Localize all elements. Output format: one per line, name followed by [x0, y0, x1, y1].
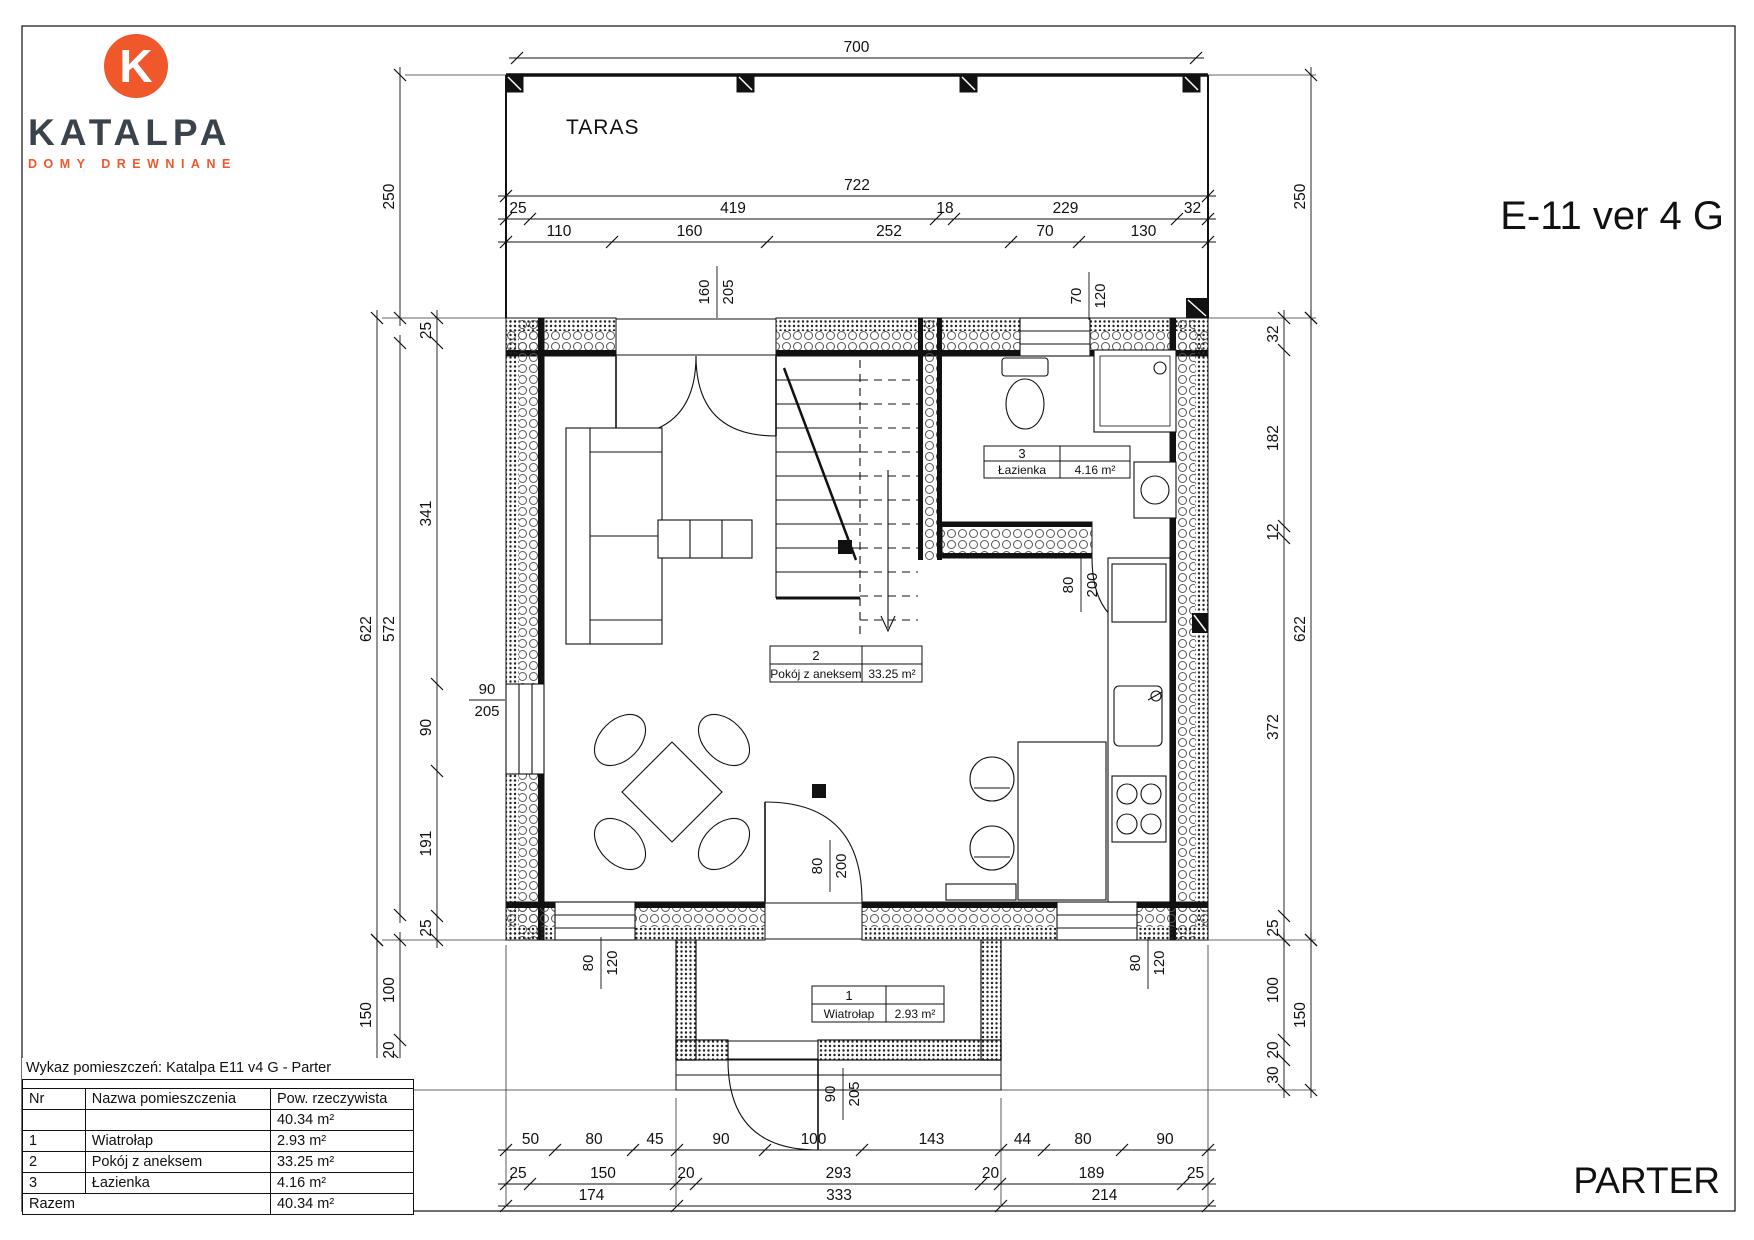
kitchen: [946, 558, 1170, 902]
terrace: [506, 75, 1208, 318]
table-row-subtotal: 40.34 m²: [23, 1110, 414, 1131]
dim-label: 90: [712, 1131, 730, 1148]
floor-title: PARTER: [1573, 1160, 1720, 1202]
kitchen-sink: [1114, 686, 1162, 746]
room-nr: 1: [23, 1131, 86, 1152]
dim-chain: 174333214: [498, 1187, 1216, 1212]
room-area: 33.25 m²: [270, 1152, 413, 1173]
bathroom-fixtures: [1002, 350, 1176, 518]
dim-label: 622: [1292, 616, 1309, 642]
dim-label: 25: [1265, 919, 1282, 936]
dim-label: 341: [418, 501, 435, 527]
dim-chain: 254191822932: [498, 200, 1216, 225]
left-window: [506, 684, 544, 774]
front-door-label: 90 205: [822, 1068, 863, 1120]
dim-chain: 700: [509, 39, 1204, 64]
dim-label: 100: [1265, 977, 1282, 1003]
dim-label: 130: [1131, 223, 1157, 240]
dim-chain: 1002030: [1265, 932, 1290, 1098]
room-schedule-caption: Wykaz pomieszczeń: Katalpa E11 v4 G - Pa…: [22, 1058, 414, 1079]
floor-plan-svg: TARAS: [0, 0, 1754, 1240]
table-row: [23, 1080, 414, 1089]
logo-tagline: DOMY DREWNIANE: [28, 157, 260, 171]
table-row: 3 Łazienka 4.16 m²: [23, 1173, 414, 1194]
col-header-area: Pow. rzeczywista: [270, 1089, 413, 1110]
dim-chain: 572: [381, 335, 406, 923]
window-br-label: 80 120: [1127, 937, 1168, 989]
bar-stools: [970, 757, 1014, 870]
dim-label: 160: [677, 223, 703, 240]
dim-label: 150: [358, 1002, 375, 1028]
bath-window: [1020, 318, 1090, 356]
svg-text:200: 200: [833, 853, 850, 878]
dim-label: 25: [418, 919, 435, 936]
stairs: [776, 356, 918, 640]
dim-label: 150: [1292, 1002, 1309, 1028]
svg-text:80: 80: [809, 858, 826, 875]
room-schedule: Wykaz pomieszczeń: Katalpa E11 v4 G - Pa…: [22, 1058, 414, 1215]
dim-chain: 150: [1292, 932, 1317, 1098]
dim-label: 722: [844, 177, 870, 194]
svg-text:205: 205: [846, 1081, 863, 1106]
toilet: [1002, 358, 1048, 429]
room-tag-2: 2 Pokój z aneksem 33.25 m²: [770, 646, 922, 682]
stair-direction-arrow: [881, 470, 895, 631]
dim-label: 182: [1265, 425, 1282, 451]
dim-label: 143: [919, 1131, 945, 1148]
dim-label: 100: [801, 1131, 827, 1148]
dim-label: 50: [522, 1131, 540, 1148]
bath-door-label: 80 200: [1060, 558, 1101, 612]
dim-label: 32: [1184, 200, 1201, 217]
svg-text:80: 80: [1127, 955, 1144, 972]
double-entry-door-top: [616, 319, 776, 436]
sofa: [566, 428, 662, 644]
svg-text:2: 2: [812, 648, 819, 663]
svg-text:120: 120: [1092, 283, 1109, 308]
dim-label: 20: [1265, 1041, 1282, 1059]
dim-label: 372: [1265, 714, 1282, 740]
svg-text:160: 160: [696, 279, 713, 304]
dim-label: 32: [1265, 325, 1282, 342]
dim-label: 700: [844, 39, 870, 56]
window-bl-label: 80 120: [580, 937, 621, 989]
svg-text:205: 205: [474, 703, 499, 720]
room-nr: 3: [23, 1173, 86, 1194]
dim-chain: 321821237225: [1265, 310, 1290, 948]
room-tag-1: 1 Wiatrołap 2.93 m²: [812, 986, 944, 1022]
svg-text:70: 70: [1068, 288, 1085, 305]
svg-text:2.93 m²: 2.93 m²: [895, 1007, 936, 1021]
svg-text:3: 3: [1018, 446, 1025, 461]
dim-label: 110: [547, 223, 572, 240]
table-row-total: Razem 40.34 m²: [23, 1194, 414, 1215]
dim-label: 18: [936, 200, 953, 217]
table-row: 2 Pokój z aneksem 33.25 m²: [23, 1152, 414, 1173]
col-header-name: Nazwa pomieszczenia: [85, 1089, 270, 1110]
cooktop: [1112, 776, 1166, 842]
logo-letter: K: [119, 39, 152, 93]
svg-text:90: 90: [479, 681, 496, 698]
bottom-right-window: [1057, 902, 1137, 940]
dim-label: 293: [826, 1165, 852, 1182]
room-area: 2.93 m²: [270, 1131, 413, 1152]
table-row: 1 Wiatrołap 2.93 m²: [23, 1131, 414, 1152]
shower: [1094, 350, 1176, 432]
svg-text:80: 80: [1060, 577, 1077, 594]
room-name: Łazienka: [85, 1173, 270, 1194]
dim-label: 44: [1014, 1131, 1032, 1148]
room-nr: 2: [23, 1152, 86, 1173]
dim-label: 80: [1074, 1131, 1092, 1148]
entry-top-label: 160 205: [696, 266, 737, 318]
sheet-frame: [22, 26, 1735, 1211]
dim-label: 25: [509, 1165, 526, 1182]
washbasin: [1134, 462, 1176, 518]
logo-name: KATALPA: [28, 114, 260, 151]
bath-window-label: 70 120: [1068, 272, 1109, 320]
svg-text:90: 90: [822, 1086, 839, 1103]
dim-label: 90: [418, 719, 435, 737]
dim-label: 20: [982, 1165, 1000, 1182]
dim-chain: 722: [498, 177, 1216, 202]
svg-text:80: 80: [580, 955, 597, 972]
dim-label: 80: [585, 1131, 603, 1148]
dim-chain: 11016025270130: [498, 223, 1216, 248]
dim-label: 189: [1079, 1165, 1105, 1182]
svg-text:205: 205: [720, 279, 737, 304]
svg-text:1: 1: [845, 988, 852, 1003]
sideboard: [658, 520, 752, 558]
hall-door-label: 80 200: [809, 840, 850, 892]
dim-label: 250: [1292, 183, 1309, 209]
dining-set: [585, 705, 760, 880]
dim-label: 572: [381, 616, 398, 642]
bench: [946, 884, 1016, 900]
svg-text:Łazienka: Łazienka: [998, 463, 1046, 477]
drawing-sheet: TARAS: [0, 0, 1754, 1240]
dim-chain: 50804590100143448090: [498, 1131, 1216, 1156]
table-header-row: Nr Nazwa pomieszczenia Pow. rzeczywista: [23, 1089, 414, 1110]
dim-label: 229: [1053, 200, 1079, 217]
svg-text:120: 120: [1151, 950, 1168, 975]
svg-text:Wiatrołap: Wiatrołap: [824, 1007, 875, 1021]
dim-label: 250: [381, 183, 398, 209]
model-title: E-11 ver 4 G: [1500, 194, 1724, 239]
dim-label: 45: [646, 1131, 663, 1148]
room-name: Pokój z aneksem: [85, 1152, 270, 1173]
dim-label: 20: [381, 1041, 398, 1059]
left-window-label: 90 205: [469, 681, 505, 720]
dim-chain: 622: [358, 310, 383, 948]
dim-label: 174: [579, 1187, 605, 1204]
room-name: Wiatrołap: [85, 1131, 270, 1152]
total-value: 40.34 m²: [270, 1194, 413, 1215]
svg-text:200: 200: [1084, 572, 1101, 597]
total-label: Razem: [23, 1194, 271, 1215]
col-header-nr: Nr: [23, 1089, 86, 1110]
entry-steps: [676, 1060, 1001, 1090]
dim-label: 100: [381, 977, 398, 1003]
living-furniture: [566, 428, 759, 879]
dim-label: 25: [1187, 1165, 1204, 1182]
svg-text:Pokój z aneksem: Pokój z aneksem: [770, 667, 861, 681]
dim-label: 622: [358, 616, 375, 642]
svg-text:120: 120: [604, 950, 621, 975]
svg-text:4.16 m²: 4.16 m²: [1075, 463, 1116, 477]
svg-text:33.25 m²: 33.25 m²: [868, 667, 915, 681]
logo: K KATALPA DOMY DREWNIANE: [28, 34, 260, 171]
subtotal-area: 40.34 m²: [270, 1110, 413, 1131]
dim-label: 333: [826, 1187, 852, 1204]
dim-label: 252: [876, 223, 902, 240]
dim-label: 25: [509, 200, 526, 217]
dim-label: 214: [1092, 1187, 1118, 1204]
room-tag-3: 3 Łazienka 4.16 m²: [984, 446, 1130, 478]
fridge: [1112, 564, 1166, 622]
dim-label: 20: [677, 1165, 695, 1182]
dim-label: 419: [720, 200, 746, 217]
dim-label: 70: [1036, 223, 1054, 240]
terrace-label: TARAS: [566, 116, 639, 139]
dim-chain: 250: [1292, 67, 1317, 326]
dim-chain: 253419019125: [418, 310, 443, 948]
terrace-posts: [506, 75, 1200, 92]
logo-mark-icon: K: [104, 34, 168, 98]
bottom-left-window: [555, 902, 635, 940]
dim-chain: 622: [1292, 310, 1317, 948]
dim-label: 150: [590, 1165, 616, 1182]
island: [1018, 742, 1106, 900]
dim-label: 191: [418, 831, 435, 857]
dim-label: 25: [418, 322, 435, 339]
dim-chain: 250: [381, 67, 406, 326]
dim-label: 12: [1265, 523, 1282, 540]
dim-label: 90: [1156, 1131, 1174, 1148]
room-area: 4.16 m²: [270, 1173, 413, 1194]
dim-label: 30: [1265, 1066, 1282, 1084]
